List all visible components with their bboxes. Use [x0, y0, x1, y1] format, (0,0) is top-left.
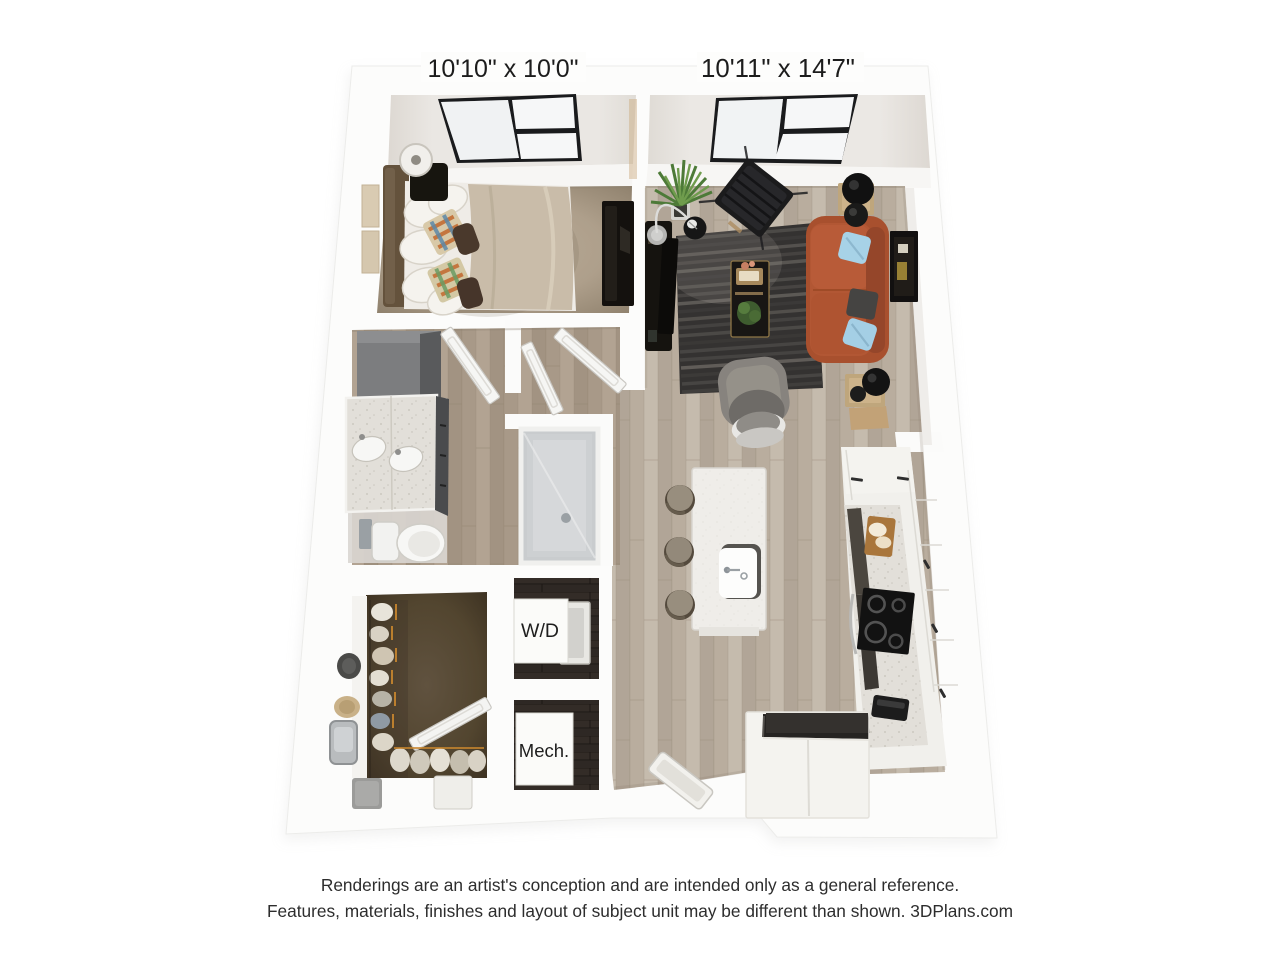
- svg-text:Mech.: Mech.: [519, 740, 569, 761]
- svg-text:W/D: W/D: [521, 620, 559, 642]
- svg-text:10'11" x 14'7": 10'11" x 14'7": [701, 55, 855, 83]
- svg-text:Renderings are an artist's con: Renderings are an artist's conception an…: [321, 875, 959, 895]
- svg-text:Features, materials, finishes: Features, materials, finishes and layout…: [267, 901, 1013, 921]
- svg-text:10'10" x 10'0": 10'10" x 10'0": [427, 55, 578, 83]
